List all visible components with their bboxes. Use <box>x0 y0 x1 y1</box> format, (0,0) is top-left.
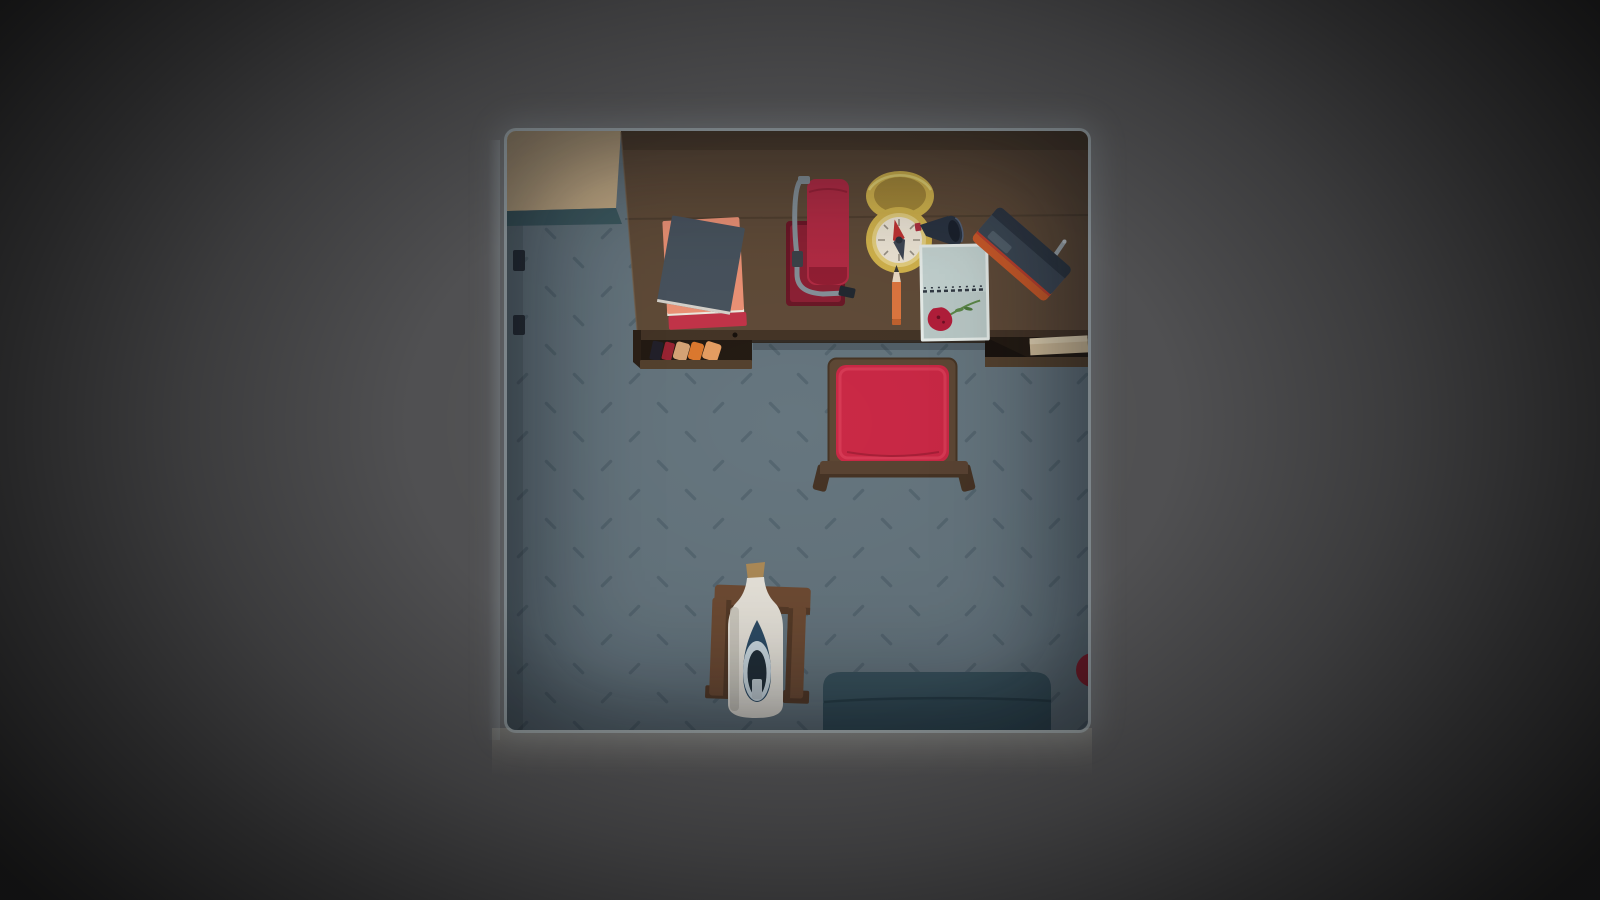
extinguisher-bottom-cap <box>809 267 847 285</box>
rug-edge-strip <box>507 208 622 226</box>
book-stack[interactable] <box>657 215 747 330</box>
couch-lower-cushion <box>823 699 1051 730</box>
chair-back-rail-edge <box>820 474 968 478</box>
notebook-top-page <box>922 246 986 292</box>
game-viewport <box>0 0 1600 900</box>
desk-right-shelf <box>985 335 1088 367</box>
room-light-spill <box>492 728 1092 776</box>
notebook-with-rose[interactable] <box>919 243 990 341</box>
chair <box>812 358 976 492</box>
extinguisher-hose-mount <box>798 176 810 184</box>
left-shelf-lip <box>640 360 752 369</box>
room-light-spill-left <box>488 140 500 740</box>
book-dark[interactable] <box>657 215 745 315</box>
bottle-inner-slot <box>752 679 762 699</box>
room-scene <box>507 131 1088 730</box>
bottle-body-shading <box>730 607 739 711</box>
folded-paper[interactable] <box>1030 335 1088 355</box>
right-shelf-lip <box>985 357 1088 367</box>
compass-needle-pin <box>896 237 903 244</box>
wall-hook-bottom <box>513 315 525 335</box>
desk-shelf-books[interactable] <box>649 340 722 362</box>
rug <box>507 131 621 211</box>
couch <box>823 672 1051 730</box>
radio-antenna-tip <box>1063 240 1067 244</box>
wall-hook-top <box>513 250 525 271</box>
desk-back-rail <box>621 131 1088 150</box>
desk-keyhole <box>733 333 738 338</box>
chair-cushion <box>836 365 949 462</box>
room <box>507 131 1088 730</box>
pencil-end <box>892 319 901 325</box>
extinguisher-hose-bracket <box>792 251 803 267</box>
pencil-shaft <box>892 282 901 319</box>
desk-floor-shadow <box>753 342 985 350</box>
